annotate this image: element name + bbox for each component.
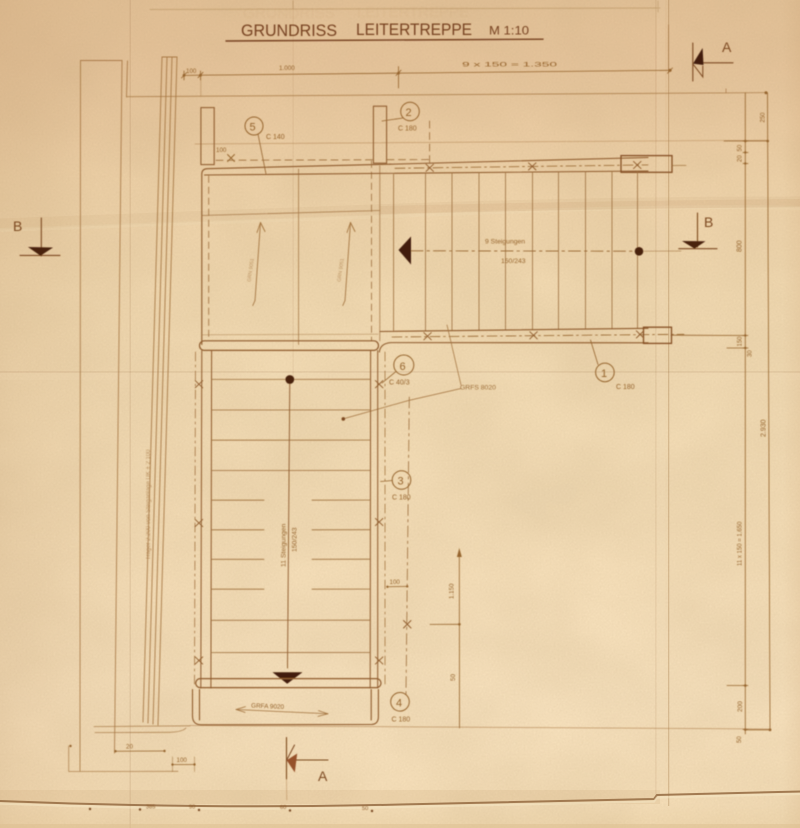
svg-text:GRUNDRISS: GRUNDRISS [243,5,335,22]
svg-text:Träger 2.200 von Steiganlage: Träger 2.200 von Steiganlage UK ± 2.100 [146,449,152,560]
svg-text:20: 20 [126,744,133,751]
svg-text:LEITERTREPPE: LEITERTREPPE [357,4,469,21]
svg-text:9 x 150 = 1.350: 9 x 150 = 1.350 [462,62,558,69]
svg-text:385: 385 [146,805,155,811]
svg-text:90: 90 [189,805,195,811]
svg-text:B: B [704,214,713,230]
svg-text:C 180: C 180 [392,717,411,724]
svg-text:1.000: 1.000 [279,65,295,72]
svg-text:50: 50 [737,736,743,743]
svg-text:4: 4 [396,698,402,710]
svg-text:2: 2 [406,107,412,119]
svg-text:20: 20 [738,155,744,162]
svg-text:6: 6 [400,361,406,373]
svg-text:A: A [318,768,328,784]
svg-text:1.150: 1.150 [449,583,456,599]
svg-text:9 Steigungen: 9 Steigungen [485,239,525,246]
svg-text:GRFS 8020: GRFS 8020 [460,385,496,392]
svg-text:50: 50 [450,674,457,681]
svg-text:100: 100 [177,757,188,764]
svg-text:800: 800 [737,240,744,252]
svg-text:C 140: C 140 [266,134,285,141]
svg-text:C 40/3: C 40/3 [389,380,410,387]
svg-text:100: 100 [216,147,227,154]
svg-text:11 Steigungen: 11 Steigungen [281,523,288,567]
svg-text:150: 150 [738,336,744,347]
svg-text:250: 250 [761,112,767,123]
svg-text:50: 50 [362,806,368,812]
svg-text:150/243: 150/243 [501,258,526,265]
svg-text:100: 100 [186,68,197,75]
svg-text:100: 100 [390,579,401,586]
svg-text:60: 60 [280,805,286,811]
svg-text:3: 3 [398,476,404,488]
svg-text:M 1:10: M 1:10 [489,24,529,38]
svg-text:200: 200 [737,701,744,712]
svg-text:30: 30 [748,350,754,357]
svg-text:1: 1 [601,368,607,380]
svg-text:GRFA 9020: GRFA 9020 [251,703,285,711]
svg-text:150/243: 150/243 [292,527,299,552]
svg-text:C 180: C 180 [616,384,635,391]
svg-text:2.930: 2.930 [761,419,768,437]
svg-text:C 180: C 180 [392,495,411,502]
svg-text:A: A [722,39,732,55]
svg-text:11 x 150 = 1.650: 11 x 150 = 1.650 [738,521,744,566]
svg-text:C 180: C 180 [398,126,417,133]
svg-text:5: 5 [250,122,256,134]
svg-text:B: B [13,218,22,234]
svg-text:LEITERTREPPE: LEITERTREPPE [356,21,472,39]
svg-text:50: 50 [738,144,744,151]
svg-text:GRUNDRISS: GRUNDRISS [241,22,337,40]
